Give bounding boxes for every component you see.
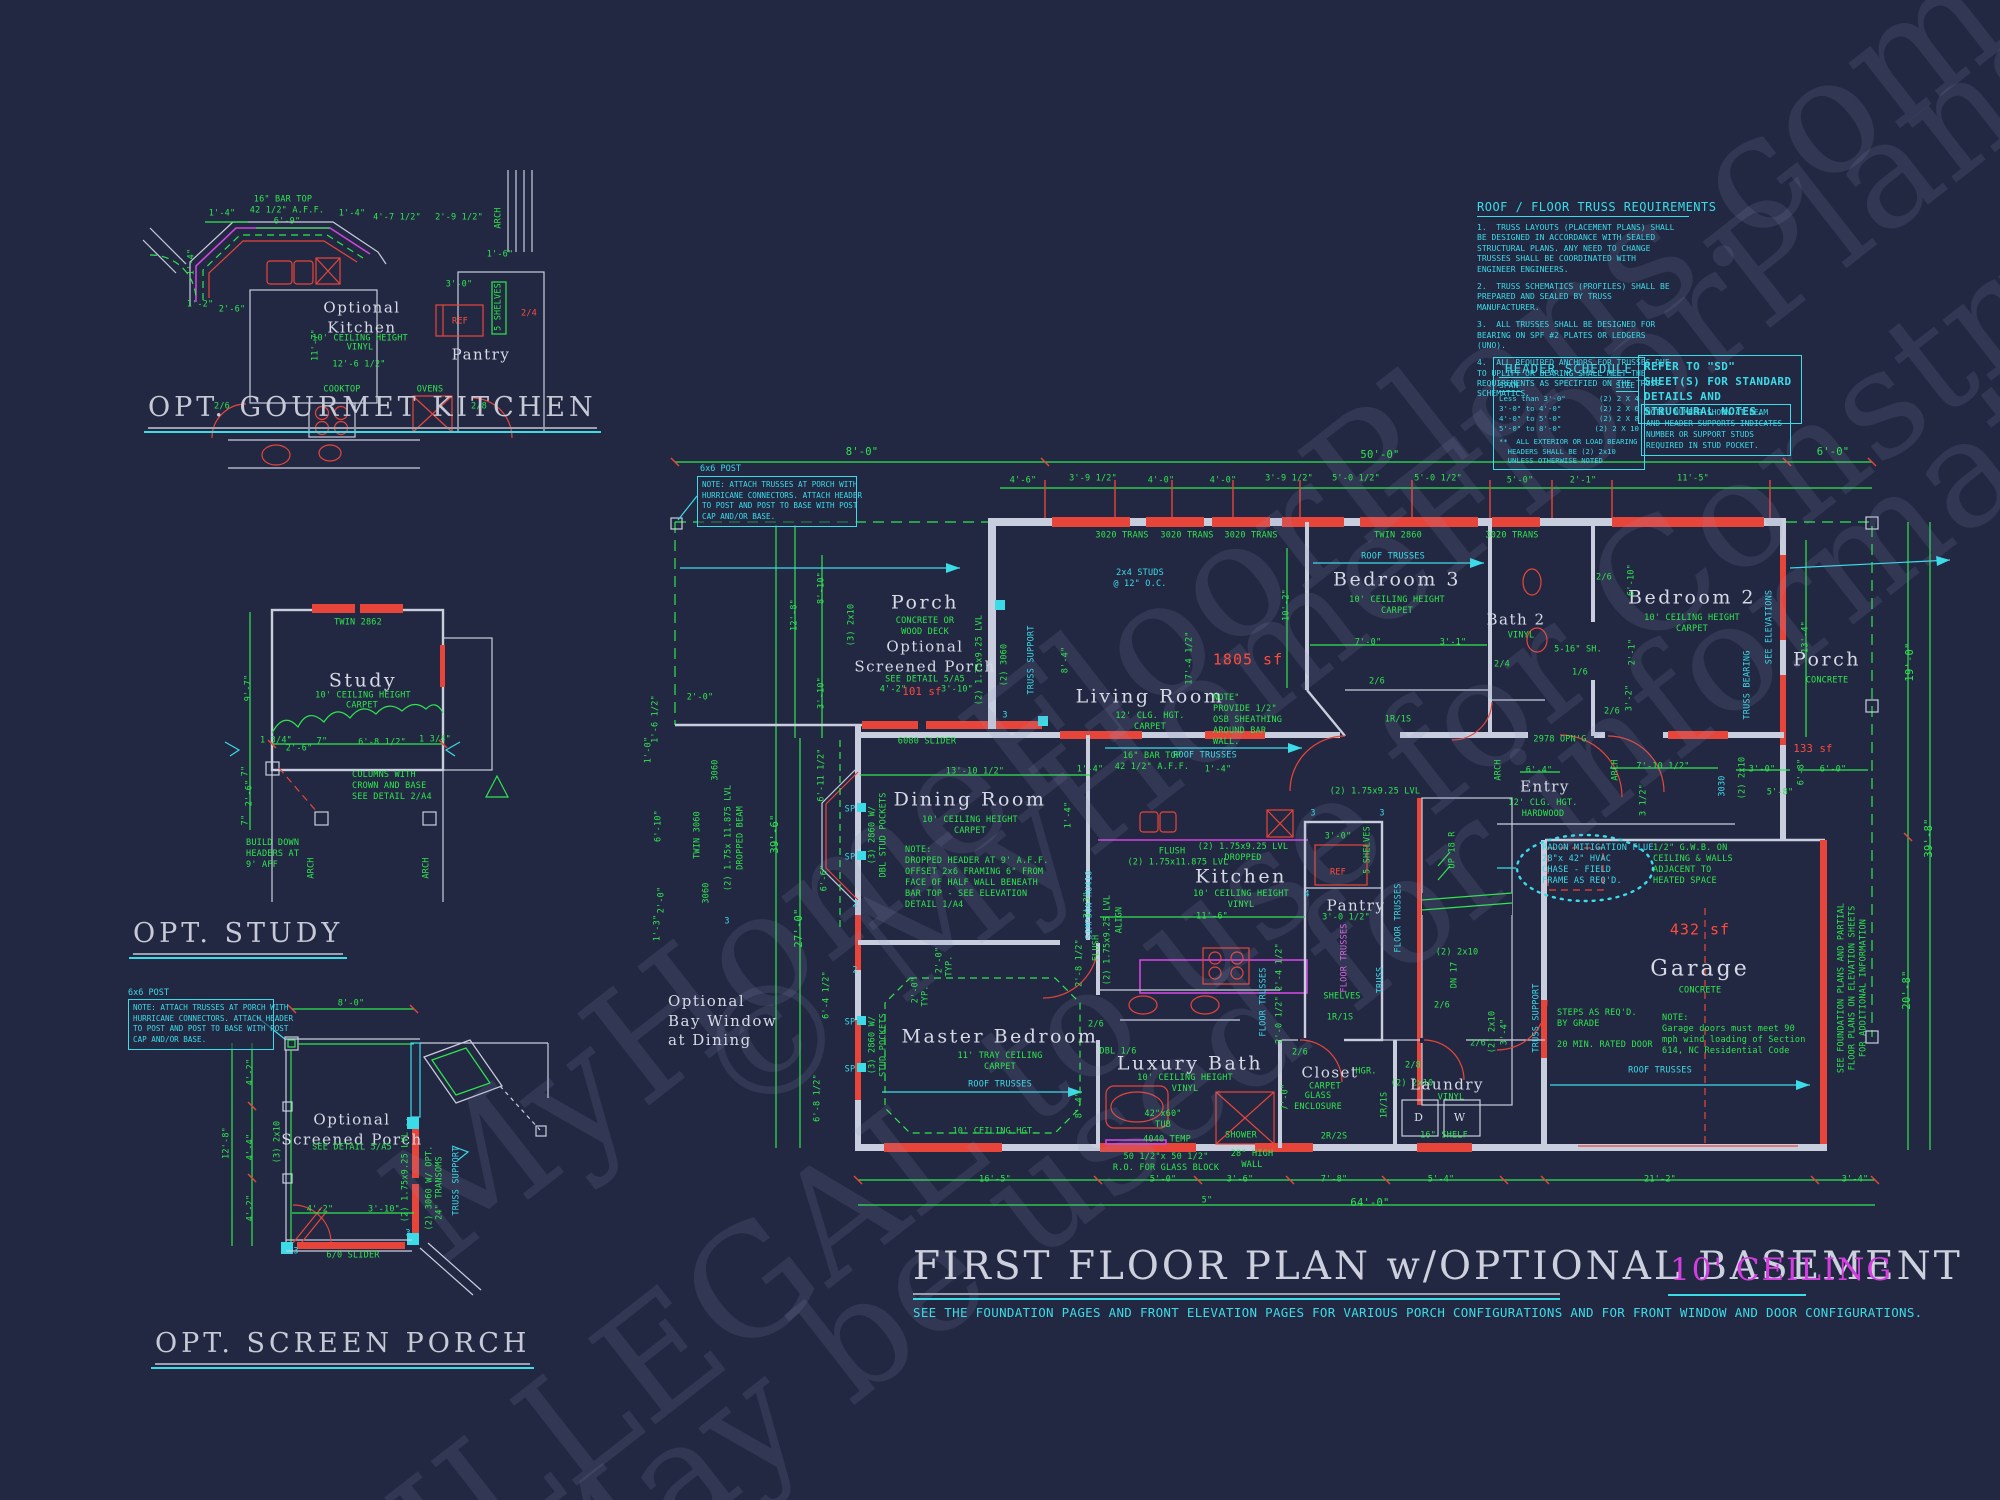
room-pantry-detail: Pantry [452, 345, 511, 365]
plan-annotation: CARPET [346, 700, 378, 711]
header-schedule-title: HEADER SCHEDULE [1499, 361, 1639, 378]
header-schedule-footnote: ** ALL EXTERIOR OR LOAD BEARING HEADERS … [1499, 437, 1639, 466]
plan-annotation: 2 [852, 965, 857, 976]
plan-annotation: FLOOR PLANS ON ELEVATION SHEETS [1847, 906, 1858, 1071]
plan-annotation: NOTE" PROVIDE 1/2" OSB SHEATHING AROUND … [1213, 693, 1282, 748]
plan-annotation: 5'-0 1/2" [1414, 473, 1462, 484]
plan-annotation: 2/6 [1088, 1019, 1104, 1030]
plan-annotation: 2/4 [1494, 659, 1510, 670]
plan-annotation: (2) 2x10 [1436, 947, 1479, 958]
plan-annotation: 1'-3" [652, 915, 663, 942]
plan-annotation: NOTE: DROPPED HEADER AT 9' A.F.F. OFFSET… [905, 845, 1049, 911]
room-dining: Dining Room [894, 788, 1047, 813]
plan-annotation: 2/4 [521, 308, 537, 319]
plan-annotation: 5'-0" [1507, 475, 1534, 486]
plan-annotation: 6'-0" [1817, 446, 1850, 460]
plan-annotation: (3) 2x10 [846, 604, 857, 647]
plan-annotation: 2/6 [1292, 1047, 1308, 1058]
plan-annotation: 10'-2" [1281, 589, 1292, 621]
plan-annotation: 2'-4 1/2" [1274, 943, 1285, 991]
plan-annotation: CONCRETE OR WOOD DECK [896, 616, 955, 638]
plan-annotation: SEE FOUNDATION PLANS AND PARTIAL [1836, 903, 1847, 1073]
plan-annotation: 3'-3" [1082, 892, 1093, 919]
plan-annotation: 2'-6" [219, 304, 246, 315]
plan-annotation: (2) 1.75x9.25 LVL [1102, 895, 1113, 985]
plan-annotation: 1R/1S [1379, 1092, 1390, 1119]
area-garage: 432 sf [1670, 920, 1730, 940]
plan-annotation: 3'-10" [941, 684, 973, 695]
room-bedroom2: Bedroom 2 [1628, 586, 1756, 611]
plan-annotation: 3020 TRANS [1224, 530, 1277, 541]
plan-annotation: 20 MIN. RATED DOOR [1557, 1040, 1653, 1051]
plan-annotation: BUILD DOWN HEADERS AT 9' AFF [246, 838, 299, 871]
plan-annotation: 2'-1" [1570, 475, 1597, 486]
plan-annotation: 3060 [701, 882, 712, 903]
plan-annotation: SHELVES [1323, 991, 1360, 1002]
room-optional-kitchen: Optional Kitchen [323, 299, 400, 338]
plan-annotation: 8'-0" [338, 998, 365, 1009]
plan-annotation: 12' CLG. HGT. HARDWOOD [1508, 798, 1577, 820]
truss-requirements-title: ROOF / FLOOR TRUSS REQUIREMENTS [1477, 200, 1689, 217]
label-bay-window: Optional Bay Window at Dining [668, 992, 777, 1051]
plan-annotation: 10' CEILING HEIGHT VINYL [1137, 1073, 1233, 1095]
plan-annotation: REF [1330, 867, 1346, 878]
plan-annotation: 6080 SLIDER [898, 736, 957, 747]
plan-annotation: 2978 OPN'G [1533, 734, 1586, 745]
plan-annotation: TRUSS [1375, 967, 1386, 994]
plan-annotation: 3'-6" [1227, 1174, 1254, 1185]
header-schedule-row: Less than 3'-0"(2) 2 X 4 [1499, 394, 1639, 404]
header-schedule-row: 5'-0" to 8'-0"(2) 2 X 10 [1499, 424, 1639, 434]
plan-annotation: GLASS ENCLOSURE [1294, 1091, 1342, 1113]
plan-annotation: 50 1/2"x 50 1/2" R.O. FOR GLASS BLOCK [1113, 1152, 1219, 1174]
plan-annotation: ARCH [1493, 759, 1504, 780]
plan-annotation: 8'-4" [1074, 1092, 1085, 1119]
plan-annotation: 2'-6" [286, 743, 313, 754]
plan-annotation: 2/6 [1604, 706, 1620, 717]
plan-annotation: VINYL [1508, 630, 1535, 641]
plan-annotation: 3 [1379, 808, 1384, 819]
plan-annotation: 3 [1310, 808, 1315, 819]
plan-annotation: 7" [240, 815, 251, 826]
plan-annotation: 3'-0" [1749, 764, 1776, 775]
plan-annotation: SP [845, 1017, 856, 1028]
plan-annotation: FLUSH [1091, 935, 1102, 962]
plan-annotation: 6'-0" [1820, 764, 1847, 775]
plan-annotation: 2/6 [1596, 572, 1612, 583]
plan-annotation: 3 [405, 1118, 410, 1129]
plan-annotation: (2) 2x10 [1487, 1011, 1498, 1054]
plan-annotation: 4'-2" [245, 1059, 256, 1086]
detail-title: OPT. GOURMET KITCHEN [148, 392, 597, 429]
plan-annotation: W [1454, 1111, 1466, 1125]
plan-annotation: ROOF TRUSSES [1628, 1065, 1692, 1076]
plan-annotation: FLUSH [1159, 846, 1186, 857]
plan-annotation: REF [452, 316, 468, 327]
room-garage: Garage [1650, 956, 1749, 985]
plan-annotation: TRUSS SUPPORT [1026, 625, 1037, 694]
plan-annotation: 10' CEILING HEIGHT CARPET [922, 815, 1018, 837]
plan-annotation: 10' CEILING HEIGHT CARPET [1644, 613, 1740, 635]
porch-note-detail: NOTE: ATTACH TRUSSES AT PORCH WITH HURRI… [128, 999, 274, 1050]
plan-annotation: 50'-0" [1360, 449, 1399, 463]
plan-annotation: 11'-6" [1196, 911, 1228, 922]
plan-annotation: NOTE: Garage doors must meet 90 mph wind… [1662, 1013, 1806, 1057]
plan-annotation: SP [845, 852, 856, 863]
plan-annotation: 12'-8" [221, 1127, 232, 1159]
plan-annotation: 1'-2" [187, 299, 214, 310]
plan-annotation: COLUMNS WITH CROWN AND BASE SEE DETAIL 2… [352, 770, 432, 803]
area-screened-porch: 101 sf [902, 686, 941, 700]
plan-annotation: 28" HIGH WALL [1231, 1149, 1274, 1171]
plan-annotation: 3020 TRANS [1160, 530, 1213, 541]
plan-annotation: RADON MITIGATION FLUE 28"x 42" HVAC CHAS… [1542, 843, 1654, 887]
plan-annotation: 4040 TEMP [1143, 1134, 1191, 1145]
plan-annotation: 2'-9 1/2" [435, 212, 483, 223]
plan-annotation: 17'-4 1/2" [1184, 631, 1195, 684]
plan-annotation: 4'-6" [1010, 475, 1037, 486]
plan-annotation: 42"x60" TUB [1144, 1109, 1181, 1131]
header-schedule-col-span: SPAN [1499, 381, 1522, 392]
plan-annotation: 3 1/2" [1638, 784, 1649, 816]
plan-annotation: STEPS AS REQ'D. BY GRADE [1557, 1008, 1637, 1030]
plan-annotation: 11' TRAY CEILING CARPET [957, 1051, 1042, 1073]
plan-annotation: 5'-4" [1428, 1174, 1455, 1185]
plan-annotation: 7'-0" [1355, 637, 1382, 648]
plan-annotation: 2/6 [1434, 1000, 1450, 1011]
plan-annotation: 4'-0" [1210, 475, 1237, 486]
plan-annotation: TWIN 3060 [692, 811, 703, 859]
plan-annotation: (3) 2860 W/ [867, 1016, 878, 1075]
plan-annotation: 2 [852, 899, 857, 910]
plan-annotation: (2) 2x10 [1737, 757, 1748, 800]
post-label-plan: 6x6 POST [700, 464, 741, 474]
plan-annotation: ALIGN [1114, 907, 1125, 934]
plan-annotation: 3020 TRANS [1485, 530, 1538, 541]
plan-annotation: SP [845, 804, 856, 815]
plan-annotation: 3'-0" [1325, 831, 1352, 842]
plan-annotation: 4'-4" [245, 1134, 256, 1161]
plan-annotation: 8'-10" [816, 572, 827, 604]
header-schedule-row: 3'-0" to 4'-0"(2) 2 X 6 [1499, 404, 1639, 414]
plan-annotation: ROOF TRUSSES [1361, 551, 1425, 562]
plan-annotation: 2x4 STUDS @ 12" O.C. [1113, 568, 1166, 590]
plan-annotation: 5 SHELVES [493, 283, 504, 331]
plan-annotation: TRUSS SUPPORT [1531, 983, 1542, 1052]
plan-annotation: SP [845, 1064, 856, 1075]
title-underline-cyan [913, 1298, 1560, 1300]
plan-annotation: 5'-0 1/2" [1332, 473, 1380, 484]
post-label-detail: 6x6 POST [128, 988, 169, 998]
plan-annotation: TWIN 2862 [334, 617, 382, 628]
plan-annotation: SHOWER [1225, 1130, 1257, 1141]
plan-annotation: 6'-9" [274, 216, 301, 227]
room-entry: Entry [1520, 777, 1570, 797]
plan-annotation: 6/0 SLIDER [326, 1250, 379, 1261]
plan-annotation: 6'-8 1/2" [812, 1074, 823, 1122]
plan-annotation: 16" BAR TOP 42 1/2" A.F.F. [1115, 751, 1189, 773]
plan-annotation: 5'-0" [1150, 1174, 1177, 1185]
plan-annotation: 3 [997, 600, 1002, 611]
plan-annotation: 1R/1S [1327, 1012, 1354, 1023]
room-living: Living Room [1076, 685, 1225, 710]
truss-requirement-item: 1. TRUSS LAYOUTS (PLACEMENT PLANS) SHALL… [1477, 223, 1689, 275]
plan-annotation: TWIN 2860 [1374, 530, 1422, 541]
plan-annotation: SEE DETAIL 5/A5 [312, 1142, 392, 1153]
plan-annotation: 3060 [710, 759, 721, 780]
plan-annotation: 3'-10" [816, 677, 827, 709]
plan-annotation: CONCRETE [1806, 675, 1849, 686]
plan-annotation: 3 [293, 1246, 298, 1257]
plan-annotation: 3 [1002, 710, 1007, 721]
plan-annotation: 2'-8 1/2" [1074, 939, 1085, 987]
plan-annotation: 3'-4" [1842, 1174, 1869, 1185]
plan-annotation: 20'-8" [1901, 970, 1915, 1009]
plan-annotation: 6'-4" [1526, 765, 1553, 776]
plan-annotation: 6'-6" [819, 865, 830, 892]
header-schedule-col-size: SIZE [1616, 381, 1639, 392]
plan-annotation: 3'-4" [1499, 1019, 1510, 1046]
plan-annotation: 3'-9 1/2" [1265, 473, 1313, 484]
plan-annotation: 12'-6 1/2" [332, 359, 385, 370]
plan-annotation: 1'-4" [186, 249, 197, 276]
plan-annotation: ROOF TRUSSES [968, 1079, 1032, 1090]
plan-annotation: 7" [317, 736, 328, 747]
plan-annotation: UP 18 R [1447, 831, 1458, 868]
plan-annotation: 19'-0" [1904, 642, 1918, 681]
plan-annotation: 7'-10 1/2" [1636, 761, 1689, 772]
plan-annotation: 24" TRANSOMS [434, 1156, 445, 1220]
plan-annotation: 1 3/4" [419, 734, 451, 745]
blueprint-sheet: MyHomeFloorPlans.com© MyHomeFloorPlans.c… [0, 0, 2000, 1500]
plan-annotation: 2'-1" [1627, 639, 1638, 666]
plan-annotation: DN 17 [1449, 962, 1460, 989]
plan-annotation: 3020 TRANS [1095, 530, 1148, 541]
room-porch-front: Porch [891, 591, 959, 616]
plan-annotation: HGR. [1355, 1066, 1376, 1077]
ceiling-height-label: 10' CEILING [1670, 1252, 1893, 1288]
plan-annotation: TRUSS SUPPORT [451, 1146, 462, 1215]
plan-annotation: 3'-0 1/2" [1322, 912, 1370, 923]
plan-annotation: 8'-4" [1060, 647, 1071, 674]
plan-annotation: 3'-10" [368, 1204, 400, 1215]
plan-annotation: 11'-7" [310, 329, 321, 361]
plan-annotation: 9'-7" [243, 675, 254, 702]
plan-annotation: FLOOR TRUSSES [1339, 923, 1350, 992]
plan-annotation: (2) 1.75x 11.875 LVL [723, 785, 734, 891]
plan-annotation: 6'-10" [1626, 564, 1637, 596]
plan-annotation: 5" [1202, 1195, 1213, 1206]
room-bath2: Bath 2 [1487, 610, 1546, 630]
plan-annotation: 12' CLG. HGT. CARPET [1115, 711, 1184, 733]
plan-annotation: 2/6 [1470, 1038, 1486, 1049]
plan-annotation: (2) 1.75x9.25 LVL [1330, 786, 1420, 797]
porch-note-plan: NOTE: ATTACH TRUSSES AT PORCH WITH HURRI… [697, 476, 857, 527]
plan-annotation: FLOOR TRUSSES [1393, 883, 1404, 952]
plan-annotation: 2'-0" [687, 692, 714, 703]
header-schedule: HEADER SCHEDULE SPAN SIZE Less than 3'-0… [1493, 357, 1645, 470]
room-closet: Closet [1302, 1063, 1359, 1083]
plan-annotation: TYP. [944, 955, 955, 976]
plan-annotation: 2R/2S [1321, 1131, 1348, 1142]
plan-annotation: 5 SHELVES [1362, 826, 1373, 874]
plan-annotation: 10' CEILING HEIGHT CARPET [1349, 595, 1445, 617]
truss-requirement-item: 3. ALL TRUSSES SHALL BE DESIGNED FOR BEA… [1477, 320, 1689, 351]
plan-annotation: 3030 [1717, 775, 1728, 796]
plan-annotation: 6'-8 1/2" [358, 737, 406, 748]
plan-annotation: 7'-0" [1280, 1084, 1291, 1111]
stud-pocket-note: NOTE: NUMBER SHOWN AT BEAM AND HEADER SU… [1641, 404, 1791, 456]
plan-annotation: 64'-0" [1350, 1197, 1389, 1211]
plan-annotation: FLOOR TRUSSES [1258, 967, 1269, 1036]
plan-annotation: 4'-7 1/2" [373, 212, 421, 223]
plan-annotation: 8'-0" [846, 446, 879, 460]
plan-annotation: 7'-8" [1321, 1174, 1348, 1185]
plan-annotation: CARPET [1309, 1081, 1341, 1092]
plan-annotation: 2'-6" [244, 780, 255, 807]
plan-annotation: 4'-2" [880, 684, 907, 695]
plan-annotation: 7" [240, 766, 251, 777]
plan-annotation: 3 [405, 1228, 410, 1239]
plan-annotation: 4'-2" [245, 1195, 256, 1222]
plan-annotation: 1R/1S [1385, 714, 1412, 725]
plan-annotation: 10' CEILING HGT. [952, 1126, 1037, 1137]
ceiling-underline-cyan [1668, 1294, 1806, 1296]
plan-annotation: 6'-11 1/2" [816, 748, 827, 801]
plan-annotation: 13'-4" [1800, 621, 1811, 653]
plan-annotation: 27'-0" [793, 908, 807, 947]
title-underline [913, 1293, 1560, 1295]
plan-annotation: 3'-2" [1624, 685, 1635, 712]
plan-annotation: VINYL [347, 342, 374, 353]
plan-annotation: 10' CEILING HEIGHT VINYL [1193, 889, 1289, 911]
plan-annotation: 21'-2" [1644, 1174, 1676, 1185]
plan-annotation: 1'-4" [1205, 764, 1232, 775]
plan-annotation: (2) 1.75x9.25 LVL [974, 615, 985, 705]
plan-annotation: 16" SHELF [1420, 1130, 1468, 1141]
plan-annotation: 1'-4" [209, 208, 236, 219]
area-main-floor: 1805 sf [1213, 650, 1283, 670]
plan-annotation: 11'-5" [1677, 473, 1709, 484]
plan-annotation: 3 [724, 916, 729, 927]
plan-annotation: 6'-4 1/2" [821, 971, 832, 1019]
plan-annotation: 1'-6" [487, 249, 514, 260]
plan-annotation: 1'-4" [339, 208, 366, 219]
plan-annotation: 6'-10" [653, 810, 664, 842]
plan-annotation: 6'-8" [1796, 759, 1807, 786]
plan-annotation: 3'-0" [446, 279, 473, 290]
room-kitchen: Kitchen [1195, 865, 1287, 890]
plan-annotation: 3'-9 1/2" [1069, 473, 1117, 484]
plan-annotation: 2'-0" [656, 887, 667, 914]
plan-annotation: 5'-8" [1767, 787, 1794, 798]
detail-title: OPT. SCREEN PORCH [155, 1328, 530, 1365]
plan-annotation: CONCRETE [1679, 985, 1722, 996]
plan-annotation: ARCH [493, 207, 504, 228]
plan-annotation: 2'-0 1/2" [1274, 996, 1285, 1044]
plan-annotation: 2/8 [1405, 1060, 1421, 1071]
plan-annotation: VINYL [1438, 1092, 1465, 1103]
plan-annotation: 1'-0" [643, 737, 654, 764]
room-bedroom3: Bedroom 3 [1333, 568, 1461, 593]
plan-annotation: 4'-2" [307, 1204, 334, 1215]
plan-annotation: 42 1/2" A.F.F. [250, 205, 324, 216]
plan-annotation: STUD POCKETS [878, 1013, 889, 1077]
plan-annotation: ARCH [306, 857, 317, 878]
plan-annotation: 1'-4" [1077, 764, 1104, 775]
plan-annotation: DROPPED BEAM [735, 806, 746, 870]
plan-annotation: 16" BAR TOP [254, 194, 313, 205]
truss-requirement-item: 2. TRUSS SCHEMATICS (PROFILES) SHALL BE … [1477, 282, 1689, 313]
plan-annotation: FOR ADDITIONAL INFORMATION [1858, 919, 1869, 1057]
plan-annotation: 13'-10 1/2" [946, 766, 1005, 777]
sheet-subtitle: SEE THE FOUNDATION PAGES AND FRONT ELEVA… [913, 1305, 1923, 1320]
detail-title: OPT. STUDY [133, 918, 343, 955]
room-master: Master Bedroom [902, 1025, 1099, 1050]
plan-annotation: 39'-8" [1923, 818, 1937, 857]
plan-annotation: SEE ELEVATIONS [1764, 590, 1775, 664]
plan-annotation: TRUSS BEARING [1742, 650, 1753, 719]
plan-annotation: 12'-8" [789, 599, 800, 631]
plan-annotation: 3'-1" [1440, 637, 1467, 648]
plan-annotation: 16'-5" [979, 1174, 1011, 1185]
plan-annotation: 1/2" G.W.B. ON CEILING & WALLS ADJACENT … [1653, 843, 1733, 887]
area-side-porch: 133 sf [1793, 743, 1832, 757]
plan-annotation: D [1414, 1111, 1424, 1125]
plan-annotation: DBL STUD POCKETS [878, 792, 889, 877]
plan-annotation: 4 [1304, 889, 1309, 900]
plan-annotation: 1/6 [1572, 667, 1588, 678]
plan-annotation: (2) 3060 [999, 644, 1010, 687]
plan-annotation: 1'-4" [1063, 802, 1074, 829]
plan-annotation: 4'-0" [1148, 475, 1175, 486]
plan-annotation: ARCH [1610, 759, 1621, 780]
plan-annotation: TYP. [920, 985, 931, 1006]
plan-annotation: 2/6 [1369, 676, 1385, 687]
plan-annotation: (2) 1.75x9.25 LVL [400, 1132, 411, 1222]
plan-annotation: 5-16" SH. [1554, 644, 1602, 655]
plan-annotation: (3) 2860 W/ [867, 806, 878, 865]
header-schedule-row: 4'-0" to 5'-0"(2) 2 X 8 [1499, 414, 1639, 424]
plan-annotation: 39'-6" [769, 814, 783, 853]
plan-annotation: ARCH [421, 857, 432, 878]
